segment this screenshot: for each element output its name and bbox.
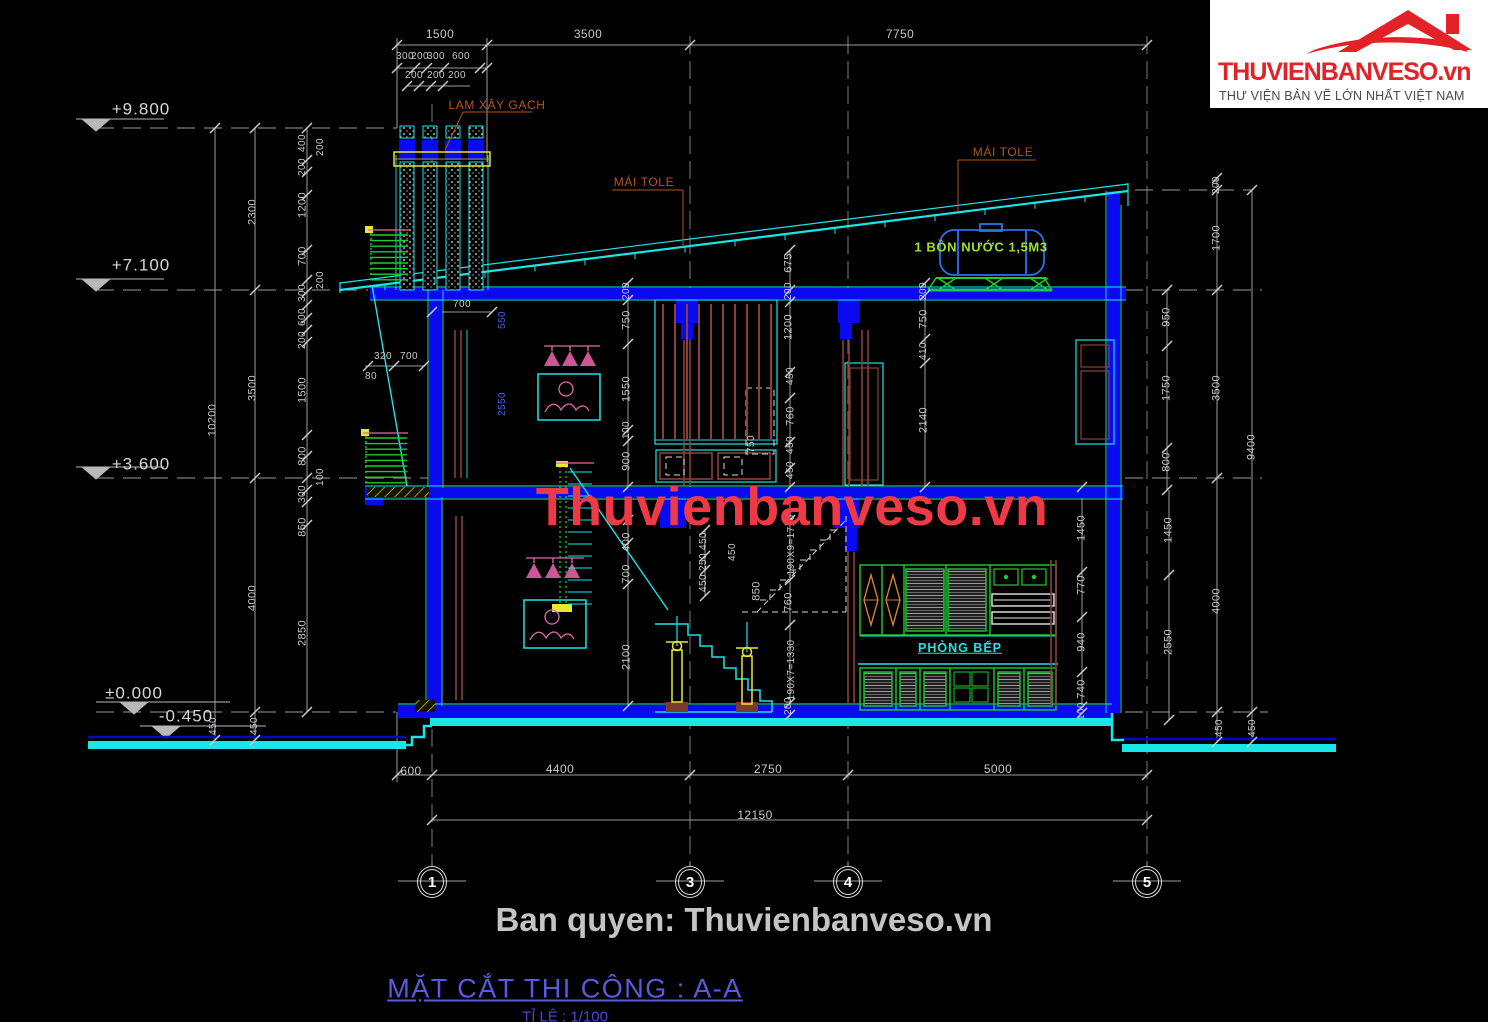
- grid-bubble-5: 5: [1132, 866, 1162, 898]
- ground-lines: [88, 713, 1336, 752]
- water-tank: [940, 224, 1044, 275]
- logo-tagline: THƯ VIỆN BẢN VẼ LỚN NHẤT VIỆT NAM: [1219, 89, 1465, 103]
- dimension-lines: [215, 38, 1252, 881]
- copyright-watermark: Ban quyen: Thuvienbanveso.vn: [496, 901, 993, 939]
- hatch-corner: [415, 700, 435, 712]
- logo-brand-text: THUVIENBANVESO.vn: [1218, 58, 1470, 87]
- drawing-scale: TỈ LỆ : 1/100: [522, 1009, 608, 1022]
- site-logo: THUVIENBANVESO.vn THƯ VIỆN BẢN VẼ LỚN NH…: [1210, 0, 1488, 108]
- grid-bubble-1: 1: [417, 866, 447, 898]
- hatch-balcony: [367, 487, 429, 497]
- grid-bubble-3: 3: [675, 866, 705, 898]
- center-watermark: Thuvienbanveso.vn: [536, 476, 1049, 538]
- grid-bubble-4: 4: [833, 866, 863, 898]
- annotation-leaders: [445, 112, 1036, 247]
- drawing-title: MẶT CẮT THI CÔNG : A-A: [387, 974, 743, 1005]
- cad-section-drawing-page: 150035007750300200300600200200200+9.800+…: [0, 0, 1488, 1022]
- kitchen-cabinets: [860, 565, 1056, 710]
- elevation-markers: [76, 119, 266, 738]
- logo-house-icon: [1210, 0, 1488, 58]
